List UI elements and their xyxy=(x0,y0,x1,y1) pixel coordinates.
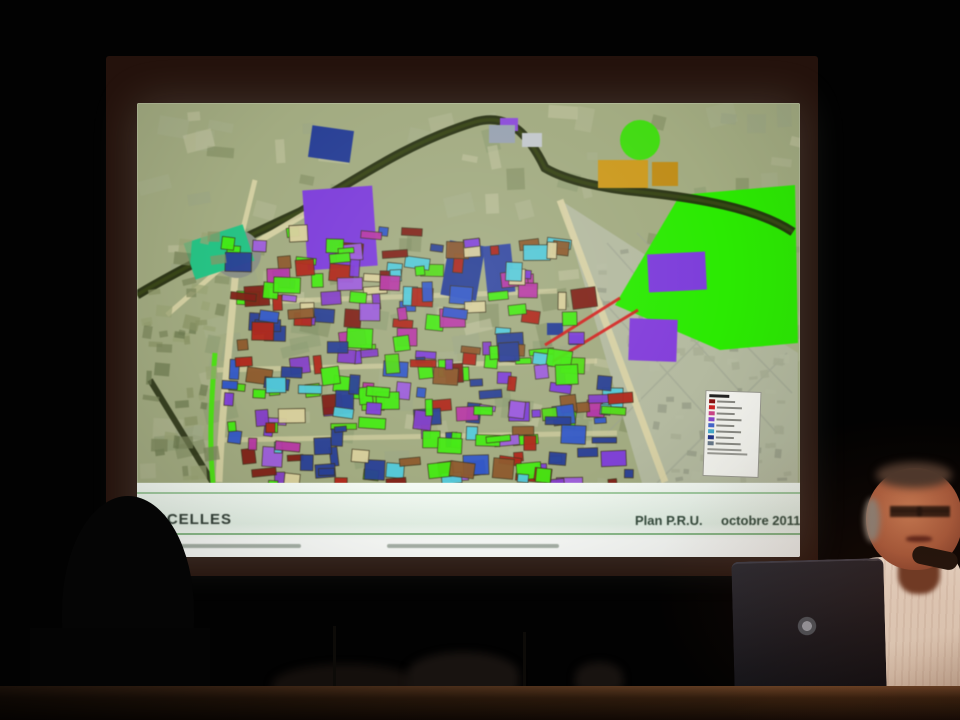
hp-logo xyxy=(795,614,820,639)
presenter-sideburn xyxy=(864,498,880,542)
legend-label-bar xyxy=(716,436,734,439)
legend-row xyxy=(708,423,756,429)
map-image xyxy=(137,103,800,483)
legend-swatch xyxy=(708,429,714,433)
projected-slide: RCELLES Plan P.R.U. octobre 2011 xyxy=(137,103,800,557)
footer-underline xyxy=(137,533,800,535)
slide-footer: RCELLES Plan P.R.U. octobre 2011 xyxy=(137,483,800,557)
presentation-room-photo: RCELLES Plan P.R.U. octobre 2011 xyxy=(0,0,960,720)
legend-swatch xyxy=(708,423,714,427)
presenter-mouth xyxy=(906,536,932,542)
legend-footnote xyxy=(707,448,755,456)
legend-swatch xyxy=(708,441,714,445)
legend-label-bar xyxy=(716,418,741,421)
legend-label-bar xyxy=(716,430,741,433)
table-edge xyxy=(0,686,960,720)
legend-swatch xyxy=(709,399,715,403)
legend-swatch xyxy=(709,405,715,409)
legend-swatch xyxy=(708,417,714,421)
legend-row xyxy=(708,429,756,435)
legend-swatch xyxy=(709,411,715,415)
presenter-hair xyxy=(876,462,952,488)
legend-label-bar xyxy=(716,442,741,445)
map-legend xyxy=(703,390,762,478)
legend-rows xyxy=(708,399,758,447)
legend-label-bar xyxy=(716,424,734,427)
legend-row xyxy=(709,411,757,417)
projection-screen: RCELLES Plan P.R.U. octobre 2011 xyxy=(106,56,818,576)
footer-fine-print-center xyxy=(387,544,559,548)
legend-label-bar xyxy=(717,400,735,403)
glasses-icon xyxy=(890,506,950,517)
legend-title-bar xyxy=(709,394,729,398)
chair-leg xyxy=(333,626,336,688)
footer-top-rule xyxy=(137,492,800,494)
legend-swatch xyxy=(708,435,714,439)
legend-row xyxy=(708,441,756,447)
chair-leg xyxy=(523,632,526,688)
legend-label-bar xyxy=(717,406,742,409)
plan-label: Plan P.R.U. xyxy=(635,513,703,528)
legend-row xyxy=(709,399,757,405)
legend-row xyxy=(709,405,757,411)
legend-label-bar xyxy=(717,412,735,415)
date-label: octobre 2011 xyxy=(721,513,800,528)
legend-row xyxy=(708,417,756,423)
laptop xyxy=(731,558,886,694)
legend-row xyxy=(708,435,756,441)
